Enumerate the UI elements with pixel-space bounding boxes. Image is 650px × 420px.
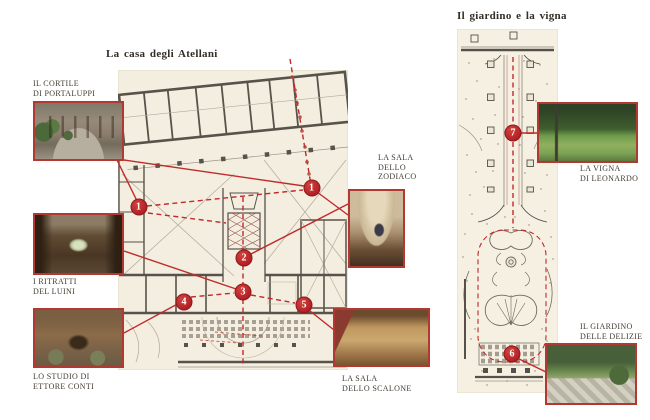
caption-cortile: IL CORTILE DI PORTALUPPI [33, 79, 95, 98]
casa-floor-plan [118, 70, 348, 370]
caption-delizie: IL GIARDINO DELLE DELIZIE [580, 322, 643, 341]
marker-3: 3 [235, 284, 252, 301]
caption-line: DELLO [378, 163, 416, 173]
marker-5: 5 [296, 297, 313, 314]
marker-1-left: 1 [130, 199, 147, 216]
caption-ritratti: I RITRATTI DEL LUINI [33, 277, 77, 296]
caption-line: IL GIARDINO [580, 322, 643, 332]
caption-line: DI LEONARDO [580, 174, 638, 184]
caption-zodiaco: LA SALA DELLO ZODIACO [378, 153, 416, 182]
caption-line: LA SALA [378, 153, 416, 163]
caption-line: DELLE DELIZIE [580, 332, 643, 342]
caption-line: IL CORTILE [33, 79, 95, 89]
caption-line: I RITRATTI [33, 277, 77, 287]
marker-6: 6 [504, 346, 521, 363]
photo-giardino-delle-delizie [545, 343, 637, 405]
caption-studio: LO STUDIO DI ETTORE CONTI [33, 372, 94, 391]
marker-2: 2 [236, 250, 253, 267]
caption-line: DI PORTALUPPI [33, 89, 95, 99]
caption-scalone: LA SALA DELLO SCALONE [342, 374, 412, 393]
caption-line: LA VIGNA [580, 164, 638, 174]
book-spread: La casa degli Atellani Il giardino e la … [0, 0, 650, 420]
caption-line: LA SALA [342, 374, 412, 384]
caption-line: DEL LUINI [33, 287, 77, 297]
photo-studio-ettore-conti [33, 308, 124, 368]
marker-7: 7 [505, 125, 522, 142]
garden-plan [457, 29, 558, 393]
photo-sala-dello-scalone [333, 308, 430, 367]
caption-line: DELLO SCALONE [342, 384, 412, 394]
caption-vigna: LA VIGNA DI LEONARDO [580, 164, 638, 183]
photo-sala-dello-zodiaco [348, 189, 405, 268]
right-page-title: Il giardino e la vigna [457, 10, 567, 22]
marker-1-right: 1 [303, 180, 320, 197]
caption-line: LO STUDIO DI [33, 372, 94, 382]
caption-line: ZODIACO [378, 172, 416, 182]
marker-4: 4 [176, 294, 193, 311]
photo-ritratti-del-luini [33, 213, 124, 275]
left-page-title: La casa degli Atellani [106, 48, 218, 60]
photo-cortile-di-portaluppi [33, 101, 124, 161]
caption-line: ETTORE CONTI [33, 382, 94, 392]
photo-vigna-di-leonardo [537, 102, 638, 163]
